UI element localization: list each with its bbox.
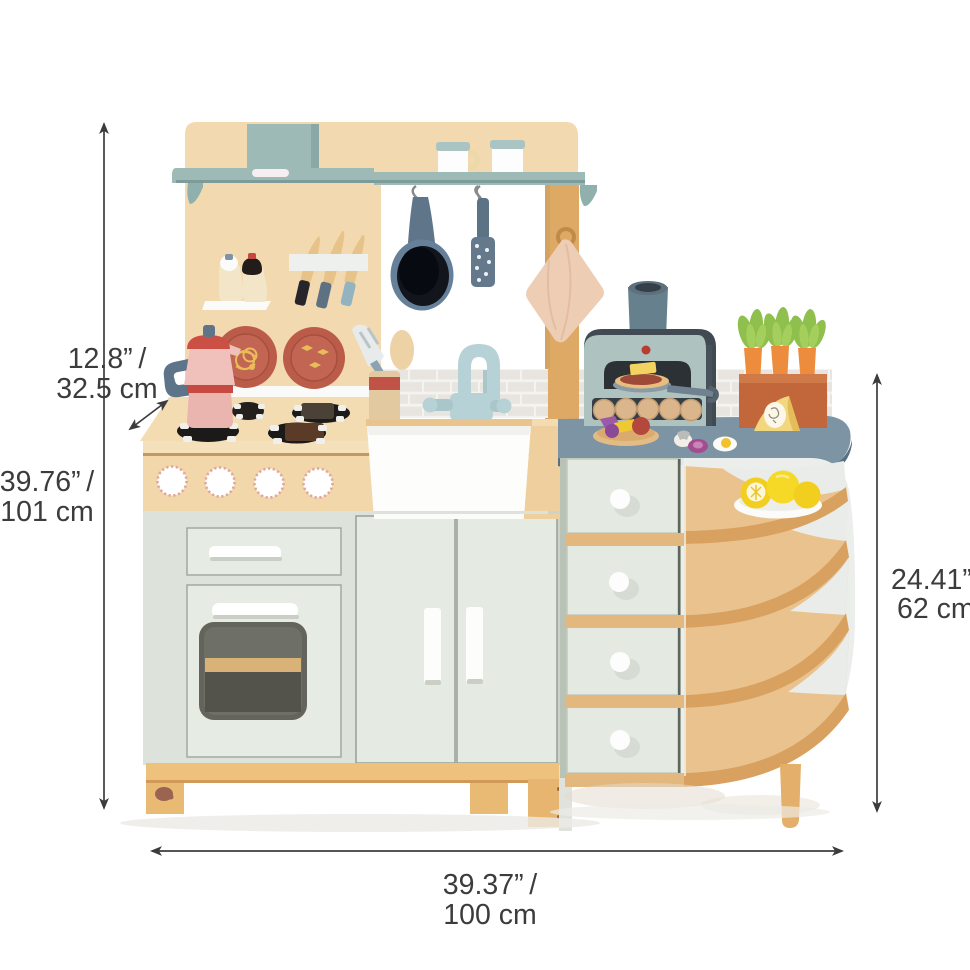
- svg-text:62 cm: 62 cm: [897, 593, 970, 625]
- svg-text:101 cm: 101 cm: [0, 496, 93, 528]
- svg-text:39.37” /: 39.37” /: [443, 869, 538, 901]
- svg-text:39.76” /: 39.76” /: [0, 466, 94, 498]
- svg-text:32.5 cm: 32.5 cm: [56, 373, 157, 405]
- svg-text:12.8” /: 12.8” /: [68, 343, 147, 375]
- svg-text:100 cm: 100 cm: [443, 899, 536, 931]
- svg-text:24.41” /: 24.41” /: [891, 564, 970, 596]
